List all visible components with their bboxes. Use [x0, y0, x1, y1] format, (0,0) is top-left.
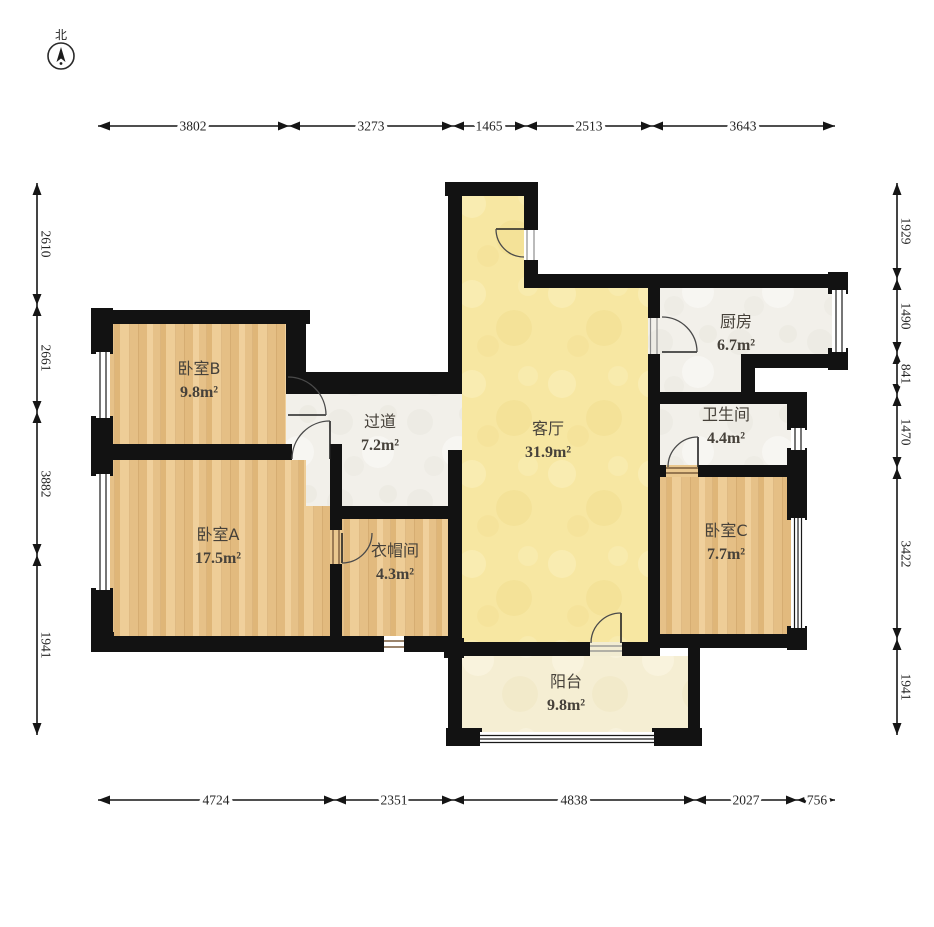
room-name: 卧室B: [178, 359, 221, 378]
cloakroom-window: [384, 636, 404, 652]
dim-value: 3802: [180, 119, 207, 134]
living-room-entry-floor: [462, 196, 524, 288]
dim-value: 1470: [899, 419, 914, 446]
kitchen-window: [832, 290, 846, 352]
dim-value: 2610: [39, 231, 54, 258]
balcony-door-gap: [590, 642, 622, 656]
dim-value: 1490: [899, 303, 914, 330]
room-name: 衣帽间: [371, 541, 419, 560]
room-area: 9.8m²: [180, 384, 218, 401]
dim-value: 3273: [358, 119, 385, 134]
room-area: 6.7m²: [717, 337, 755, 354]
bedroom-a-floor: [110, 460, 330, 636]
bedroom-b-window: [96, 352, 110, 418]
dim-value: 2513: [576, 119, 603, 134]
room-area: 9.8m²: [547, 697, 585, 714]
room-name: 阳台: [550, 672, 582, 691]
room-area: 17.5m²: [195, 550, 241, 567]
dimension-line-right: 19291490841147034221941: [893, 183, 914, 735]
room-name: 厨房: [720, 312, 752, 331]
dim-value: 756: [807, 793, 828, 808]
dimension-line-left: 2610266138821941: [33, 183, 54, 735]
dim-value: 1941: [39, 632, 54, 659]
kitchen-door-gap: [648, 318, 660, 354]
dim-value: 841: [899, 364, 914, 384]
room-name: 卧室C: [704, 521, 747, 540]
room-name: 客厅: [532, 419, 564, 438]
room-name: 卧室A: [197, 525, 240, 544]
dim-value: 2351: [381, 793, 408, 808]
room-area: 31.9m²: [525, 444, 571, 461]
bathroom-window: [791, 428, 805, 450]
bedroom-c-window: [791, 518, 805, 628]
bedroom-a-window: [96, 474, 110, 590]
room-name: 卫生间: [702, 405, 750, 424]
floor-plan-page: 北 38023273146525133643 47242351483820277…: [0, 0, 934, 927]
entry-door-gap: [524, 230, 538, 260]
bedroom-a-door-gap: [292, 444, 330, 460]
room-area: 7.7m²: [707, 546, 745, 563]
kitchen-floor-lower: [660, 354, 741, 392]
compass: 北: [48, 28, 74, 69]
hallway-opening-strip: [448, 394, 462, 450]
dim-value: 1929: [899, 218, 914, 245]
dim-value: 3882: [39, 471, 54, 498]
dim-value: 1465: [476, 119, 503, 134]
floor-plan-drawing: 北 38023273146525133643 47242351483820277…: [0, 0, 934, 927]
dim-value: 4838: [561, 793, 588, 808]
bedroom-b-door-gap: [286, 394, 306, 444]
dim-value: 2027: [733, 793, 760, 808]
cloakroom-door-gap: [330, 530, 342, 564]
balcony-window: [480, 732, 654, 746]
dim-value: 1941: [899, 674, 914, 701]
dim-value: 4724: [203, 793, 230, 808]
dim-value: 3422: [899, 541, 914, 568]
room-area: 4.3m²: [376, 566, 414, 583]
bathroom-door-gap: [666, 465, 698, 477]
dimension-line-bottom: 4724235148382027756: [98, 793, 835, 808]
living-room-floor: [462, 288, 648, 642]
room-area: 4.4m²: [707, 430, 745, 447]
dim-value: 2661: [39, 345, 54, 372]
dim-value: 3643: [730, 119, 757, 134]
room-name: 过道: [364, 412, 396, 431]
room-area: 7.2m²: [361, 437, 399, 454]
compass-north-label: 北: [55, 28, 67, 42]
balcony-floor: [462, 656, 688, 732]
compass-center-dot: [60, 62, 63, 65]
dimension-line-top: 38023273146525133643: [98, 119, 835, 134]
